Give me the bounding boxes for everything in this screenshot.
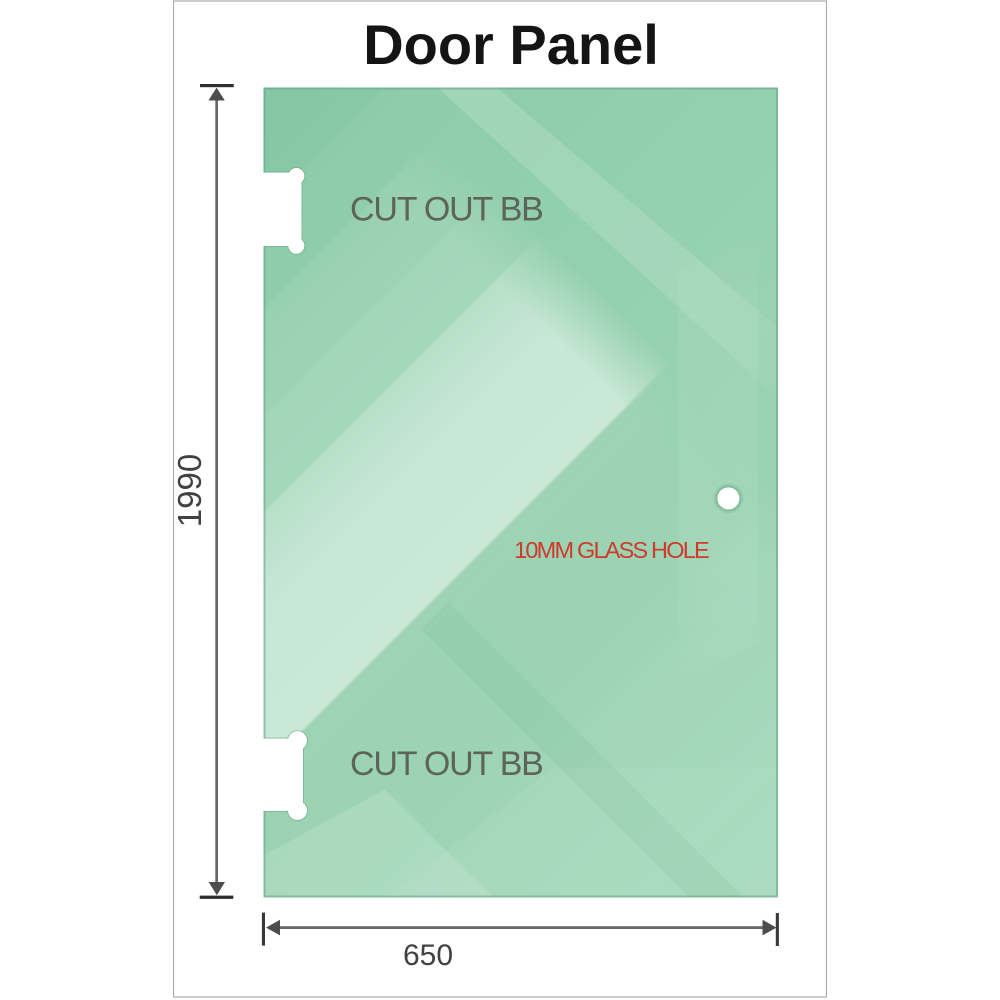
svg-text:650: 650 <box>403 939 453 972</box>
svg-text:CUT OUT BB: CUT OUT BB <box>350 191 543 229</box>
svg-text:10MM GLASS HOLE: 10MM GLASS HOLE <box>514 537 709 563</box>
svg-text:CUT OUT BB: CUT OUT BB <box>350 745 543 783</box>
svg-text:Door Panel: Door Panel <box>363 13 659 76</box>
svg-text:1990: 1990 <box>171 454 208 527</box>
